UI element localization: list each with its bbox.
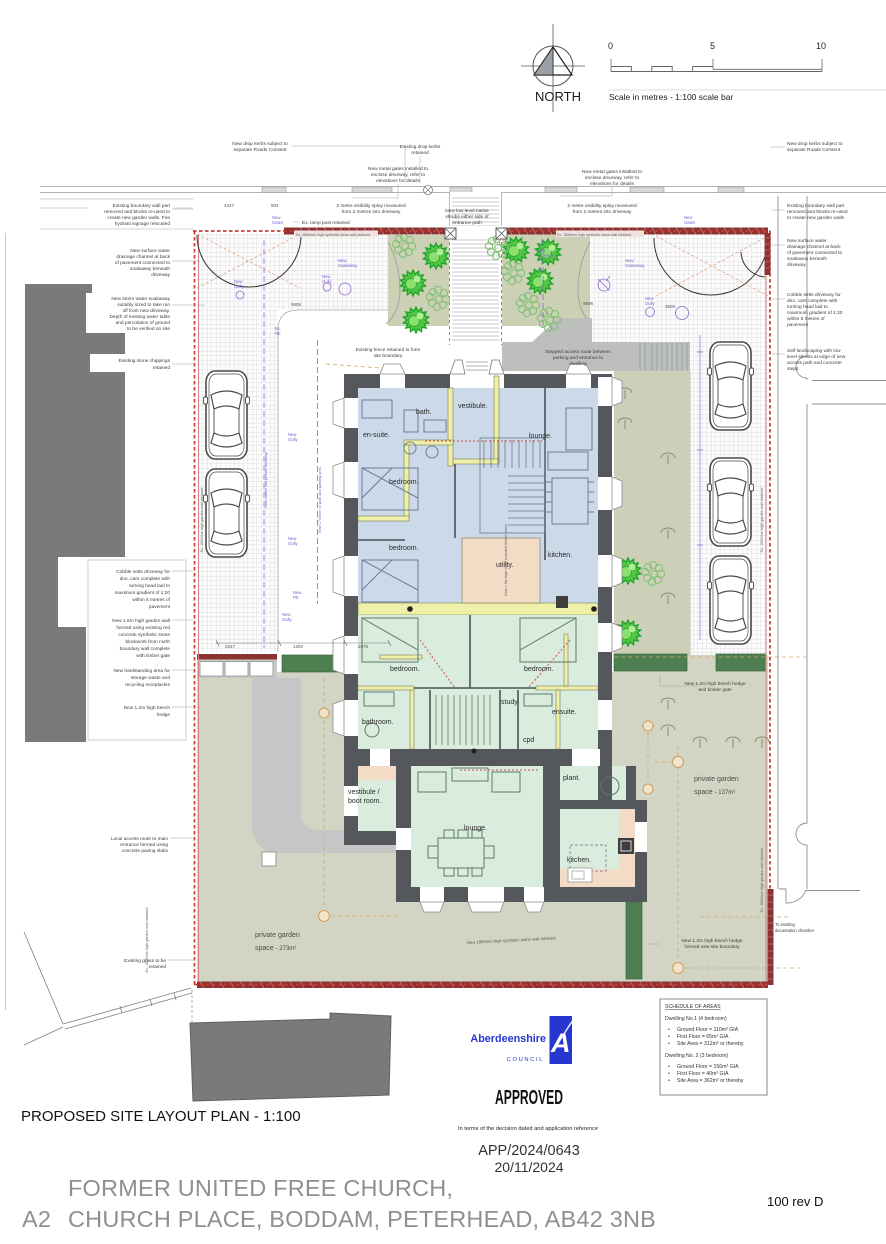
- svg-text:1200: 1200: [293, 644, 304, 649]
- svg-text:SCHEDULE OF AREAS: SCHEDULE OF AREAS: [665, 1004, 721, 1010]
- svg-text:space - 273m²: space - 273m²: [255, 945, 296, 952]
- svg-text:boot room.: boot room.: [348, 798, 382, 805]
- svg-text:formed using existing red: formed using existing red: [116, 625, 170, 631]
- svg-text:site boundary: site boundary: [374, 353, 403, 359]
- svg-text:New surface water: New surface water: [787, 238, 827, 244]
- svg-text:pavement: pavement: [787, 322, 809, 328]
- svg-text:Existing fence retained to for: Existing fence retained to form: [356, 347, 421, 353]
- svg-text:Cobble setts driveway for: Cobble setts driveway for: [787, 292, 841, 298]
- svg-text:Existing stone chippings: Existing stone chippings: [119, 358, 171, 364]
- svg-text:Ex. 1800mm high garden wall re: Ex. 1800mm high garden wall retained: [200, 488, 204, 553]
- svg-text:dwelling: dwelling: [569, 361, 587, 367]
- svg-text:Existing boundary wall part: Existing boundary wall part: [787, 203, 845, 209]
- svg-text:concrete synthetic stone: concrete synthetic stone: [118, 632, 170, 638]
- svg-text:lounge.: lounge.: [464, 825, 487, 832]
- svg-text:2 metre visibility splay measu: 2 metre visibility splay measured: [336, 203, 406, 209]
- svg-text:with timber gate: with timber gate: [136, 653, 170, 659]
- svg-text:New surface water: New surface water: [130, 248, 170, 254]
- svg-text:New 1.5m high garden wall: New 1.5m high garden wall: [112, 618, 170, 624]
- svg-text:maximum gradient of 1:20: maximum gradient of 1:20: [115, 590, 171, 596]
- svg-text:New metal gates installed to: New metal gates installed to: [368, 166, 428, 172]
- svg-text:bedroom.: bedroom.: [389, 479, 419, 486]
- svg-text:Dwelling No.1 (4 bedroom): Dwelling No.1 (4 bedroom): [665, 1016, 727, 1022]
- svg-text:retained: retained: [149, 964, 167, 970]
- svg-text:maximum gradient of 1:20: maximum gradient of 1:20: [787, 310, 843, 316]
- svg-text:enclose driveway, refer to: enclose driveway, refer to: [371, 172, 426, 178]
- svg-text:entrance path: entrance path: [452, 220, 482, 226]
- svg-text:lounge.: lounge.: [529, 433, 552, 440]
- svg-text:•: •: [668, 1071, 670, 1077]
- svg-text:create new garden walls. Fire: create new garden walls. Fire: [107, 215, 170, 221]
- svg-text:dno. cars complete with: dno. cars complete with: [787, 298, 838, 304]
- svg-text:separate Roads Consent: separate Roads Consent: [787, 147, 841, 153]
- svg-text:study.: study.: [501, 699, 519, 706]
- svg-text:COUNCIL: COUNCIL: [507, 1057, 544, 1063]
- svg-text:Existing boundary wall part: Existing boundary wall part: [113, 203, 171, 209]
- svg-text:A2: A2: [22, 1206, 51, 1232]
- svg-text:PROPOSED SITE LAYOUT PLAN - 1:: PROPOSED SITE LAYOUT PLAN - 1:100: [21, 1108, 301, 1125]
- svg-text:Gully: Gully: [288, 437, 298, 442]
- svg-text:Gully: Gully: [288, 541, 298, 546]
- svg-text:Ex. lamp post retained: Ex. lamp post retained: [302, 220, 350, 226]
- svg-text:5: 5: [710, 41, 715, 51]
- svg-text:First Floor = 40m² GIA: First Floor = 40m² GIA: [677, 1071, 729, 1077]
- svg-text:ensuite.: ensuite.: [552, 709, 577, 716]
- svg-text:Self landscaping with low: Self landscaping with low: [787, 348, 841, 354]
- svg-text:and percolation of ground: and percolation of ground: [116, 320, 171, 326]
- svg-text:To existing: To existing: [775, 922, 795, 927]
- svg-text:Soakaway: Soakaway: [625, 263, 645, 268]
- svg-text:Ex. 1800mm high synthetic ston: Ex. 1800mm high synthetic stone wall ret…: [296, 233, 370, 237]
- svg-text:Depth of existing water table: Depth of existing water table: [109, 314, 170, 320]
- svg-text:Soakaway: Soakaway: [338, 263, 358, 268]
- svg-text:bath.: bath.: [416, 409, 432, 416]
- svg-text:Ex. 1800mm high garden wall re: Ex. 1800mm high garden wall retained: [760, 848, 764, 913]
- svg-text:turning head laid to: turning head laid to: [129, 583, 170, 589]
- svg-text:FORMER UNITED FREE CHURCH,: FORMER UNITED FREE CHURCH,: [68, 1175, 453, 1201]
- svg-text:New low level native: New low level native: [445, 208, 489, 214]
- svg-text:removed and blocks re-used to: removed and blocks re-used to: [104, 209, 170, 215]
- svg-text:hydrant signage relocated: hydrant signage relocated: [115, 221, 171, 227]
- svg-text:and timber gate: and timber gate: [698, 687, 732, 693]
- svg-text:bedroom.: bedroom.: [524, 666, 554, 673]
- svg-text:New drop kerbs subject to: New drop kerbs subject to: [232, 141, 288, 147]
- svg-text:Gully: Gully: [645, 301, 655, 306]
- svg-text:New hardstanding area for: New hardstanding area for: [113, 668, 170, 674]
- svg-text:private garden: private garden: [694, 776, 739, 783]
- svg-text:hedge: hedge: [157, 712, 171, 718]
- svg-text:2976: 2976: [358, 644, 369, 649]
- svg-text:Ground Floor = 110m² GIA: Ground Floor = 110m² GIA: [677, 1027, 739, 1033]
- svg-text:blockwork from north: blockwork from north: [125, 639, 170, 645]
- svg-text:20/11/2024: 20/11/2024: [494, 1159, 563, 1175]
- svg-text:parking and entrance to: parking and entrance to: [553, 355, 604, 361]
- svg-text:steps: steps: [787, 366, 799, 372]
- svg-text:Local access route to main: Local access route to main: [111, 836, 168, 842]
- svg-text:2547: 2547: [225, 644, 236, 649]
- svg-text:private garden: private garden: [255, 932, 300, 939]
- svg-text:formed new site boundary: formed new site boundary: [684, 944, 740, 950]
- svg-text:Ex. 1800mm high garden wall re: Ex. 1800mm high garden wall retained: [760, 488, 764, 553]
- svg-text:vestibule.: vestibule.: [458, 403, 488, 410]
- svg-text:APP/2024/0643: APP/2024/0643: [478, 1143, 580, 1159]
- svg-text:9806: 9806: [583, 301, 594, 306]
- svg-text:Scale in metres - 1:100 scale: Scale in metres - 1:100 scale bar: [609, 92, 733, 102]
- svg-text:separate Roads Consent: separate Roads Consent: [233, 147, 287, 153]
- svg-text:Dwelling No. 2 (3 bedroom): Dwelling No. 2 (3 bedroom): [665, 1053, 728, 1059]
- svg-text:New drop kerbs subject to: New drop kerbs subject to: [787, 141, 843, 147]
- svg-text:soakaway beneath: soakaway beneath: [787, 256, 827, 262]
- svg-text:suitably sized to take run: suitably sized to take run: [117, 302, 170, 308]
- svg-text:from 2 metres into driveway: from 2 metres into driveway: [342, 209, 402, 215]
- svg-text:Existing grass to be: Existing grass to be: [124, 958, 166, 964]
- svg-text:•: •: [668, 1064, 670, 1070]
- svg-text:•: •: [668, 1034, 670, 1040]
- svg-text:904: 904: [271, 203, 279, 208]
- svg-text:within 5 metres of: within 5 metres of: [787, 316, 825, 322]
- svg-text:In terms of the decision dated: In terms of the decision dated and appli…: [458, 1126, 598, 1132]
- svg-text:New 1.2m high beech: New 1.2m high beech: [124, 705, 171, 711]
- svg-text:Cobble setts driveway for: Cobble setts driveway for: [116, 569, 170, 575]
- svg-text:4347: 4347: [224, 203, 235, 208]
- svg-text:New 1.2m high beech hedge: New 1.2m high beech hedge: [681, 938, 742, 944]
- svg-text:of pavement connected to: of pavement connected to: [787, 250, 843, 256]
- svg-text:off from new driveway.: off from new driveway.: [122, 308, 170, 314]
- svg-text:•: •: [668, 1078, 670, 1084]
- svg-text:decantation chamber: decantation chamber: [775, 928, 815, 933]
- svg-text:Gates: Gates: [684, 220, 695, 225]
- svg-text:Gates: Gates: [272, 220, 283, 225]
- svg-text:pavement: pavement: [149, 604, 171, 610]
- svg-text:concrete paving slabs: concrete paving slabs: [122, 848, 169, 854]
- svg-text:9806: 9806: [291, 302, 302, 307]
- svg-text:3500: 3500: [665, 304, 676, 309]
- svg-text:RE: RE: [293, 595, 299, 600]
- svg-text:drainage channel at back: drainage channel at back: [787, 244, 841, 250]
- svg-text:entrance formed using: entrance formed using: [120, 842, 168, 848]
- svg-text:First Floor = 65m² GIA: First Floor = 65m² GIA: [677, 1034, 729, 1040]
- svg-text:elevations for details: elevations for details: [590, 181, 634, 187]
- svg-text:APPROVED: APPROVED: [495, 1087, 563, 1109]
- svg-text:New 1700mm of path and parking: New 1700mm of path and parking area: [318, 466, 322, 533]
- svg-text:from 2 metres into driveway: from 2 metres into driveway: [573, 209, 633, 215]
- svg-text:shrubs either side of: shrubs either side of: [445, 214, 489, 220]
- svg-text:CHURCH PLACE, BODDAM, PETERHEA: CHURCH PLACE, BODDAM, PETERHEAD, AB42 3N…: [68, 1206, 656, 1232]
- svg-text:en-suite.: en-suite.: [363, 432, 390, 439]
- svg-text:boundary wall complete: boundary wall complete: [120, 646, 171, 652]
- svg-text:New metal gates installed to: New metal gates installed to: [582, 169, 642, 175]
- svg-text:Gully: Gully: [234, 284, 244, 289]
- svg-text:retained: retained: [411, 150, 429, 156]
- svg-text:enclose driveway, refer to: enclose driveway, refer to: [585, 175, 640, 181]
- svg-text:bedroom.: bedroom.: [390, 666, 420, 673]
- svg-text:drainage channel at back: drainage channel at back: [116, 254, 170, 260]
- svg-text:dno. cars complete with: dno. cars complete with: [120, 576, 171, 582]
- svg-text:kitchen.: kitchen.: [548, 552, 572, 559]
- svg-text:Gully: Gully: [322, 279, 332, 284]
- svg-text:Gully: Gully: [282, 617, 292, 622]
- svg-text:bathroom.: bathroom.: [362, 719, 394, 726]
- svg-text:Site Area = 362m² or thereby: Site Area = 362m² or thereby: [677, 1078, 744, 1084]
- svg-text:Gateway: Gateway: [537, 253, 554, 258]
- svg-text:driveway: driveway: [151, 272, 171, 278]
- svg-text:•: •: [668, 1027, 670, 1033]
- svg-text:Ex. 1800mm high synthetic ston: Ex. 1800mm high synthetic stone wall ret…: [557, 233, 631, 237]
- svg-text:to create new garden walls: to create new garden walls: [787, 215, 845, 221]
- svg-text:NORTH: NORTH: [535, 89, 581, 104]
- svg-text:Aberdeenshire: Aberdeenshire: [470, 1033, 546, 1045]
- svg-text:plant.: plant.: [563, 775, 580, 782]
- svg-text:driveway: driveway: [787, 262, 807, 268]
- svg-text:100 rev D: 100 rev D: [767, 1194, 823, 1209]
- svg-text:•: •: [668, 1041, 670, 1047]
- svg-text:space - 137m²: space - 137m²: [694, 789, 735, 796]
- svg-text:bedroom.: bedroom.: [389, 545, 419, 552]
- svg-text:10: 10: [816, 41, 826, 51]
- svg-text:cpd: cpd: [523, 737, 534, 744]
- svg-text:New storm water soakaway: New storm water soakaway: [111, 296, 170, 302]
- svg-text:to be verified on site: to be verified on site: [127, 326, 170, 332]
- svg-text:access path and concrete: access path and concrete: [787, 360, 842, 366]
- svg-text:vestibule /: vestibule /: [348, 789, 380, 796]
- svg-text:RE: RE: [275, 331, 281, 336]
- svg-text:soakaway beneath: soakaway beneath: [130, 266, 170, 272]
- svg-text:retained: retained: [153, 365, 171, 371]
- svg-text:removed and blocks re-used: removed and blocks re-used: [787, 209, 848, 215]
- svg-text:of pavement connected to: of pavement connected to: [115, 260, 171, 266]
- svg-text:elevations for details: elevations for details: [376, 178, 420, 184]
- svg-text:Existing drop kerbs: Existing drop kerbs: [400, 144, 441, 150]
- svg-text:storage waste and: storage waste and: [131, 675, 171, 681]
- svg-text:Ground Floor = 156m² GIA: Ground Floor = 156m² GIA: [677, 1064, 739, 1070]
- svg-text:level shrubs at edge of new: level shrubs at edge of new: [787, 354, 846, 360]
- svg-text:New cobble sett private drivew: New cobble sett private driveway: [264, 452, 268, 508]
- svg-text:kitchen.: kitchen.: [567, 857, 591, 864]
- svg-text:A: A: [550, 1028, 571, 1058]
- svg-text:turning head laid to: turning head laid to: [787, 304, 828, 310]
- svg-text:0: 0: [608, 41, 613, 51]
- svg-text:2 metre visibility splay measu: 2 metre visibility splay measured: [567, 203, 637, 209]
- svg-text:within 5 metres of: within 5 metres of: [132, 597, 170, 603]
- svg-text:New 1.8m high close boarded ti: New 1.8m high close boarded timber fence: [504, 524, 508, 596]
- svg-text:recycling receptacles: recycling receptacles: [125, 682, 170, 688]
- svg-text:Stepped access route between: Stepped access route between: [545, 349, 611, 355]
- svg-text:Site Area = 312m² or thereby: Site Area = 312m² or thereby: [677, 1041, 744, 1047]
